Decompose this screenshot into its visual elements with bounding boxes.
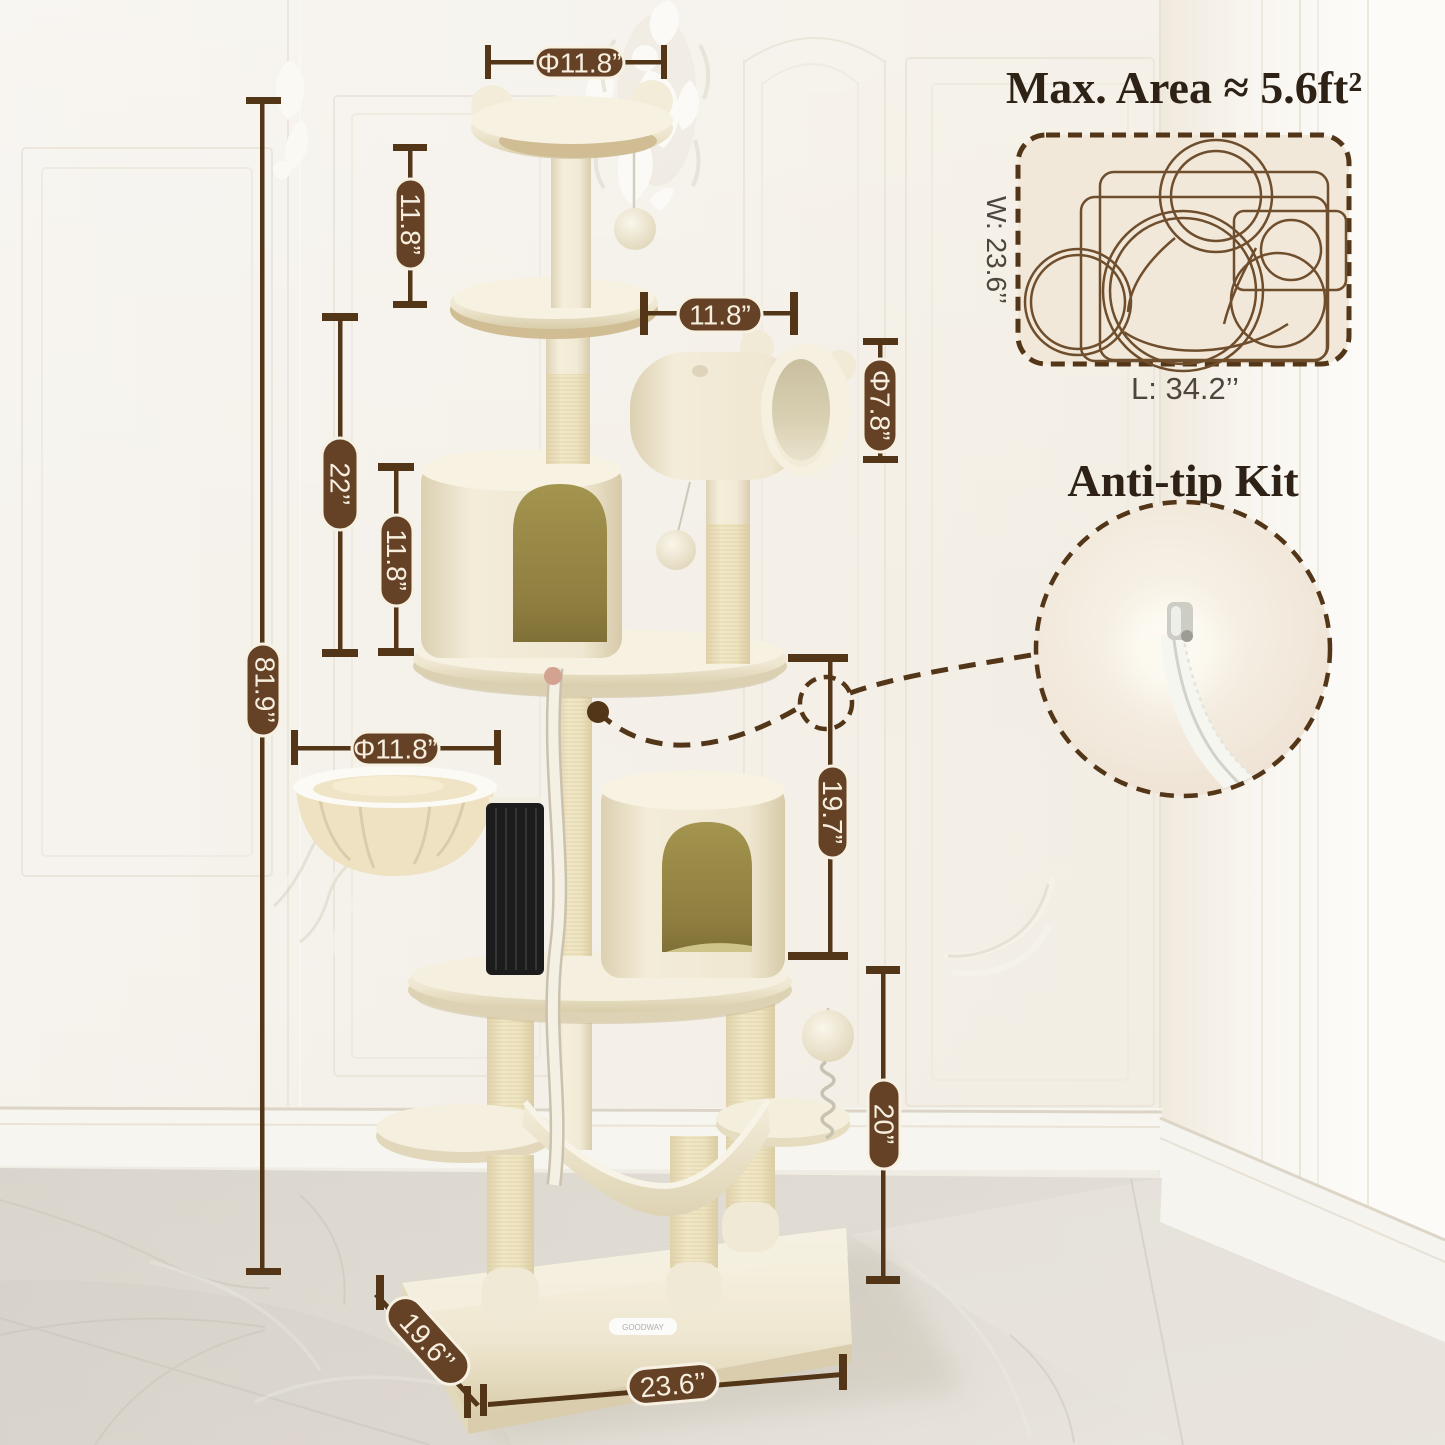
svg-text:Φ11.8”: Φ11.8” [353,734,437,765]
svg-text:23.6’’: 23.6’’ [639,1367,708,1404]
svg-text:11.8”: 11.8” [395,193,426,255]
svg-text:GOODWAY: GOODWAY [622,1323,664,1332]
svg-text:Φ7.8”: Φ7.8” [865,370,896,441]
svg-text:Anti-tip Kit: Anti-tip Kit [1067,455,1299,506]
svg-text:19.7”: 19.7” [817,780,848,844]
svg-text:22’’: 22’’ [325,462,356,505]
svg-text:20”: 20” [869,1104,900,1144]
svg-text:Φ11.8”: Φ11.8” [537,48,621,79]
svg-text:81.9’’: 81.9’’ [250,657,281,723]
svg-text:Max. Area ≈ 5.6ft²: Max. Area ≈ 5.6ft² [1006,62,1362,113]
svg-text:W: 23.6’’: W: 23.6’’ [981,196,1012,304]
svg-text:11.8”: 11.8” [689,300,751,331]
svg-text:11.8”: 11.8” [381,529,412,591]
svg-text:L: 34.2’’: L: 34.2’’ [1131,371,1239,406]
